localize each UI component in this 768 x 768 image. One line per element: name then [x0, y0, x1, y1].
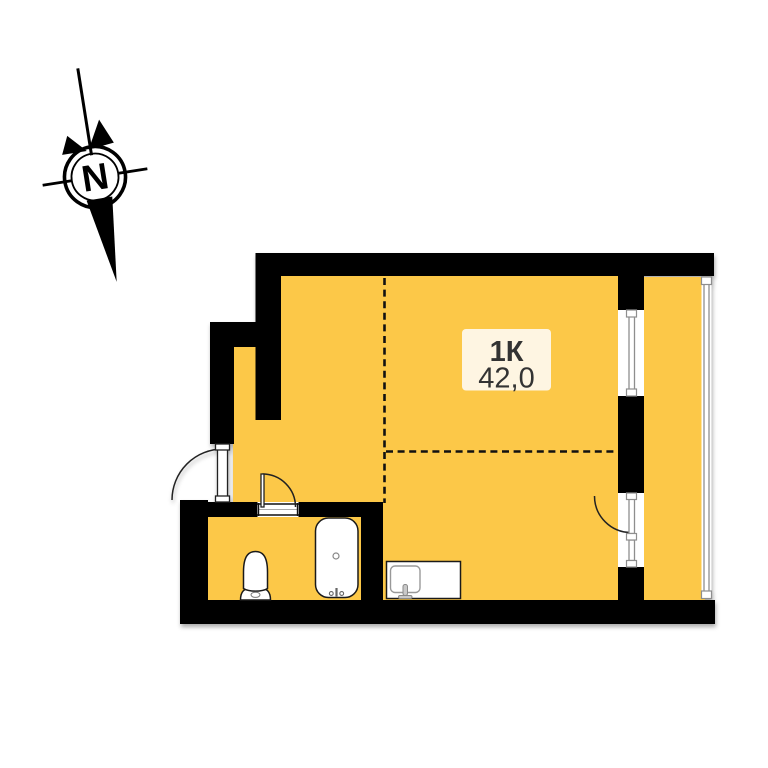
floor-entry [233, 420, 281, 502]
toilet-flush-button [251, 592, 260, 597]
wall-balcony-pier-top [618, 276, 644, 310]
compass-tail-icon [87, 197, 126, 285]
compass-needle [78, 68, 92, 155]
wall-balcony-pier-middle [618, 396, 644, 493]
compass-east-tick [118, 169, 148, 174]
wall-bathroom-top-right [299, 502, 384, 517]
wall-top [256, 253, 715, 276]
floor-plan-page: N [0, 0, 768, 768]
toilet-bowl [244, 552, 268, 592]
balcony-door-cap-bottom [627, 561, 637, 568]
bathtub-rim [316, 518, 359, 598]
entrance-door [172, 444, 230, 502]
entrance-door-cap-bottom [216, 496, 230, 502]
bathroom-door-leaf [261, 474, 264, 507]
floor-plan-scene: N [0, 0, 768, 768]
wall-entry-partition [256, 276, 282, 420]
window-living-room [618, 310, 644, 396]
balcony-sidelight-glazing [629, 540, 635, 561]
unit-area-label: 42,0 [478, 363, 534, 395]
toilet [241, 552, 271, 601]
wall-left-step [210, 322, 281, 347]
balcony-door-leaf [629, 497, 635, 534]
compass-north-label: N [79, 155, 112, 200]
entrance-door-swing-arc [172, 449, 223, 500]
wall-bathroom-top-left [180, 502, 258, 517]
wall-left [210, 347, 234, 444]
balcony-glazing-line [704, 284, 709, 592]
sink-faucet-stem [403, 585, 408, 596]
balcony-door-cap-top [627, 493, 637, 500]
window-frame-cap-bottom [627, 389, 637, 396]
balcony-glazing-cap-bottom [702, 591, 712, 599]
compass-wing-left-icon [59, 133, 87, 155]
entrance-door-leaf [218, 446, 228, 500]
bathtub-faucet-handle-right [340, 592, 344, 596]
apartment-plan: 1К 42,0 [172, 253, 715, 624]
window-glazing [629, 314, 635, 393]
balcony-door-cap-middle [627, 534, 637, 541]
balcony-glazing [702, 277, 712, 599]
compass-west-tick [43, 181, 73, 186]
wall-bottom [180, 600, 715, 624]
wall-balcony-pier-bottom [618, 567, 644, 600]
entrance-door-cap-top [216, 444, 230, 450]
north-compass: N [25, 60, 164, 291]
balcony-glazing-cap-top [702, 277, 712, 285]
bathtub [316, 518, 359, 598]
floor-balcony [644, 277, 705, 600]
sink-counter [387, 562, 461, 599]
sink-faucet-base [399, 596, 413, 599]
unit-label-box: 1К 42,0 [462, 329, 551, 395]
wall-bathroom-right [361, 517, 383, 600]
window-frame-cap-top [627, 310, 637, 317]
bathtub-faucet-handle-left [329, 592, 333, 596]
